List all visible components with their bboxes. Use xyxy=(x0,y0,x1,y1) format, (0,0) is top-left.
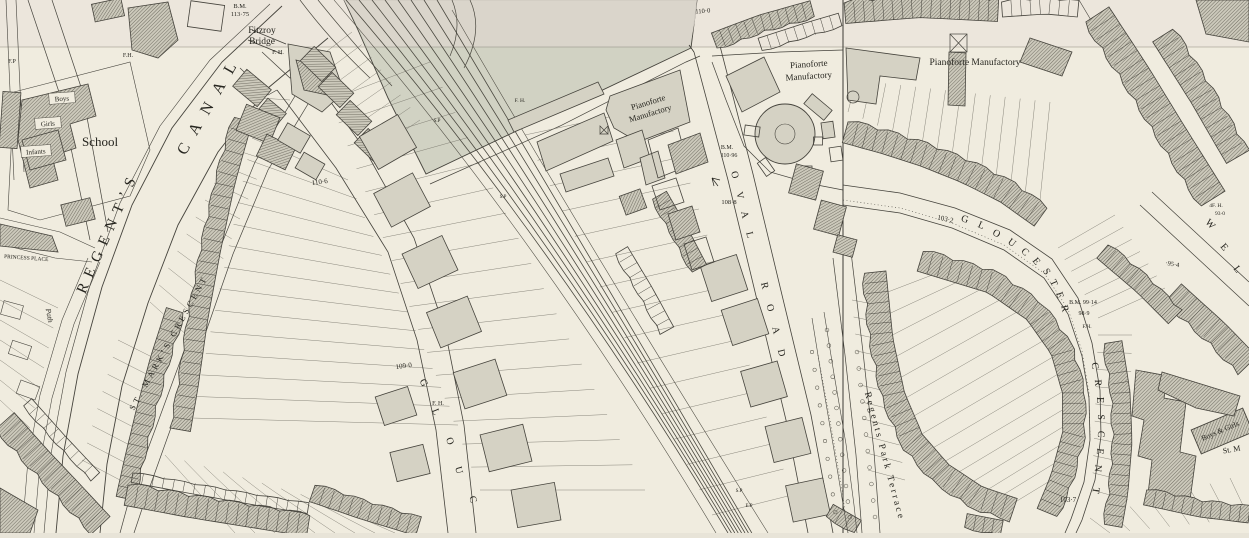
svg-text:110·0: 110·0 xyxy=(695,7,710,15)
svg-text:93·0: 93·0 xyxy=(1215,211,1225,217)
svg-text:B.M.: B.M. xyxy=(233,3,247,10)
svg-text:C: C xyxy=(1089,362,1100,370)
svg-text:R: R xyxy=(1092,379,1103,386)
svg-text:S.P: S.P xyxy=(434,119,441,124)
svg-text:E: E xyxy=(1094,397,1105,403)
svg-text:Fitzroy: Fitzroy xyxy=(248,26,276,36)
svg-text:4F. H.: 4F. H. xyxy=(1209,203,1223,209)
svg-text:S: S xyxy=(1095,414,1106,420)
svg-text:B.M. 99·14: B.M. 99·14 xyxy=(1069,300,1097,306)
svg-text:S.P: S.P xyxy=(500,195,507,200)
svg-text:C: C xyxy=(1095,430,1106,438)
svg-text:98·9: 98·9 xyxy=(1079,311,1090,317)
svg-text:108·8: 108·8 xyxy=(721,199,736,206)
svg-text:Boys: Boys xyxy=(54,94,69,103)
svg-text:F.H.: F.H. xyxy=(123,53,134,59)
svg-text:Bridge: Bridge xyxy=(249,37,275,47)
svg-text:F.H.: F.H. xyxy=(1082,324,1092,330)
svg-text:F. H.: F. H. xyxy=(515,98,526,104)
svg-text:N: N xyxy=(1092,464,1104,473)
svg-text:F. H.: F. H. xyxy=(272,50,284,56)
svg-text:B.M.: B.M. xyxy=(721,145,734,151)
svg-text:School: School xyxy=(82,134,119,149)
svg-text:110·96: 110·96 xyxy=(721,153,738,159)
svg-text:103·7: 103·7 xyxy=(1060,496,1077,504)
svg-text:113·75: 113·75 xyxy=(231,11,249,18)
svg-text:F. H.: F. H. xyxy=(432,401,444,407)
svg-text:Pianoforte Manufactory: Pianoforte Manufactory xyxy=(929,57,1020,68)
svg-text:S.P: S.P xyxy=(736,489,743,494)
svg-text:Infants: Infants xyxy=(26,147,46,156)
svg-text:E: E xyxy=(1094,448,1106,455)
svg-text:F.P: F.P xyxy=(8,59,16,65)
svg-text:Girls: Girls xyxy=(41,120,56,129)
svg-text:E.P: E.P xyxy=(745,504,752,509)
